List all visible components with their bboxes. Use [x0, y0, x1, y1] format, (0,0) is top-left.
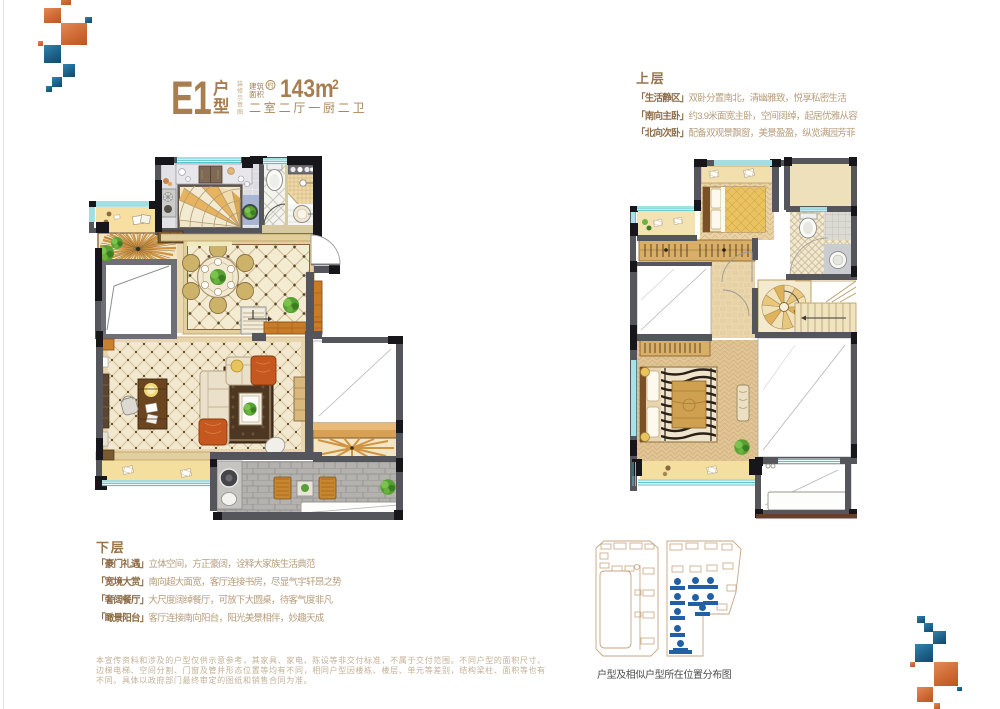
svg-text:装: 装 [237, 80, 243, 88]
svg-text:E1: E1 [171, 72, 211, 120]
svg-text:面积: 面积 [249, 89, 264, 99]
svg-text:示: 示 [237, 95, 243, 102]
svg-text:修: 修 [237, 87, 243, 95]
svg-text:户: 户 [213, 78, 230, 98]
svg-text:图: 图 [237, 109, 243, 116]
svg-text:二室二厅一厨二卫: 二室二厅一厨二卫 [249, 100, 367, 115]
svg-text:意: 意 [237, 101, 243, 109]
svg-text:143m: 143m [280, 74, 334, 102]
svg-text:型: 型 [213, 96, 230, 116]
svg-text:2: 2 [332, 76, 339, 92]
svg-text:约: 约 [268, 82, 274, 90]
